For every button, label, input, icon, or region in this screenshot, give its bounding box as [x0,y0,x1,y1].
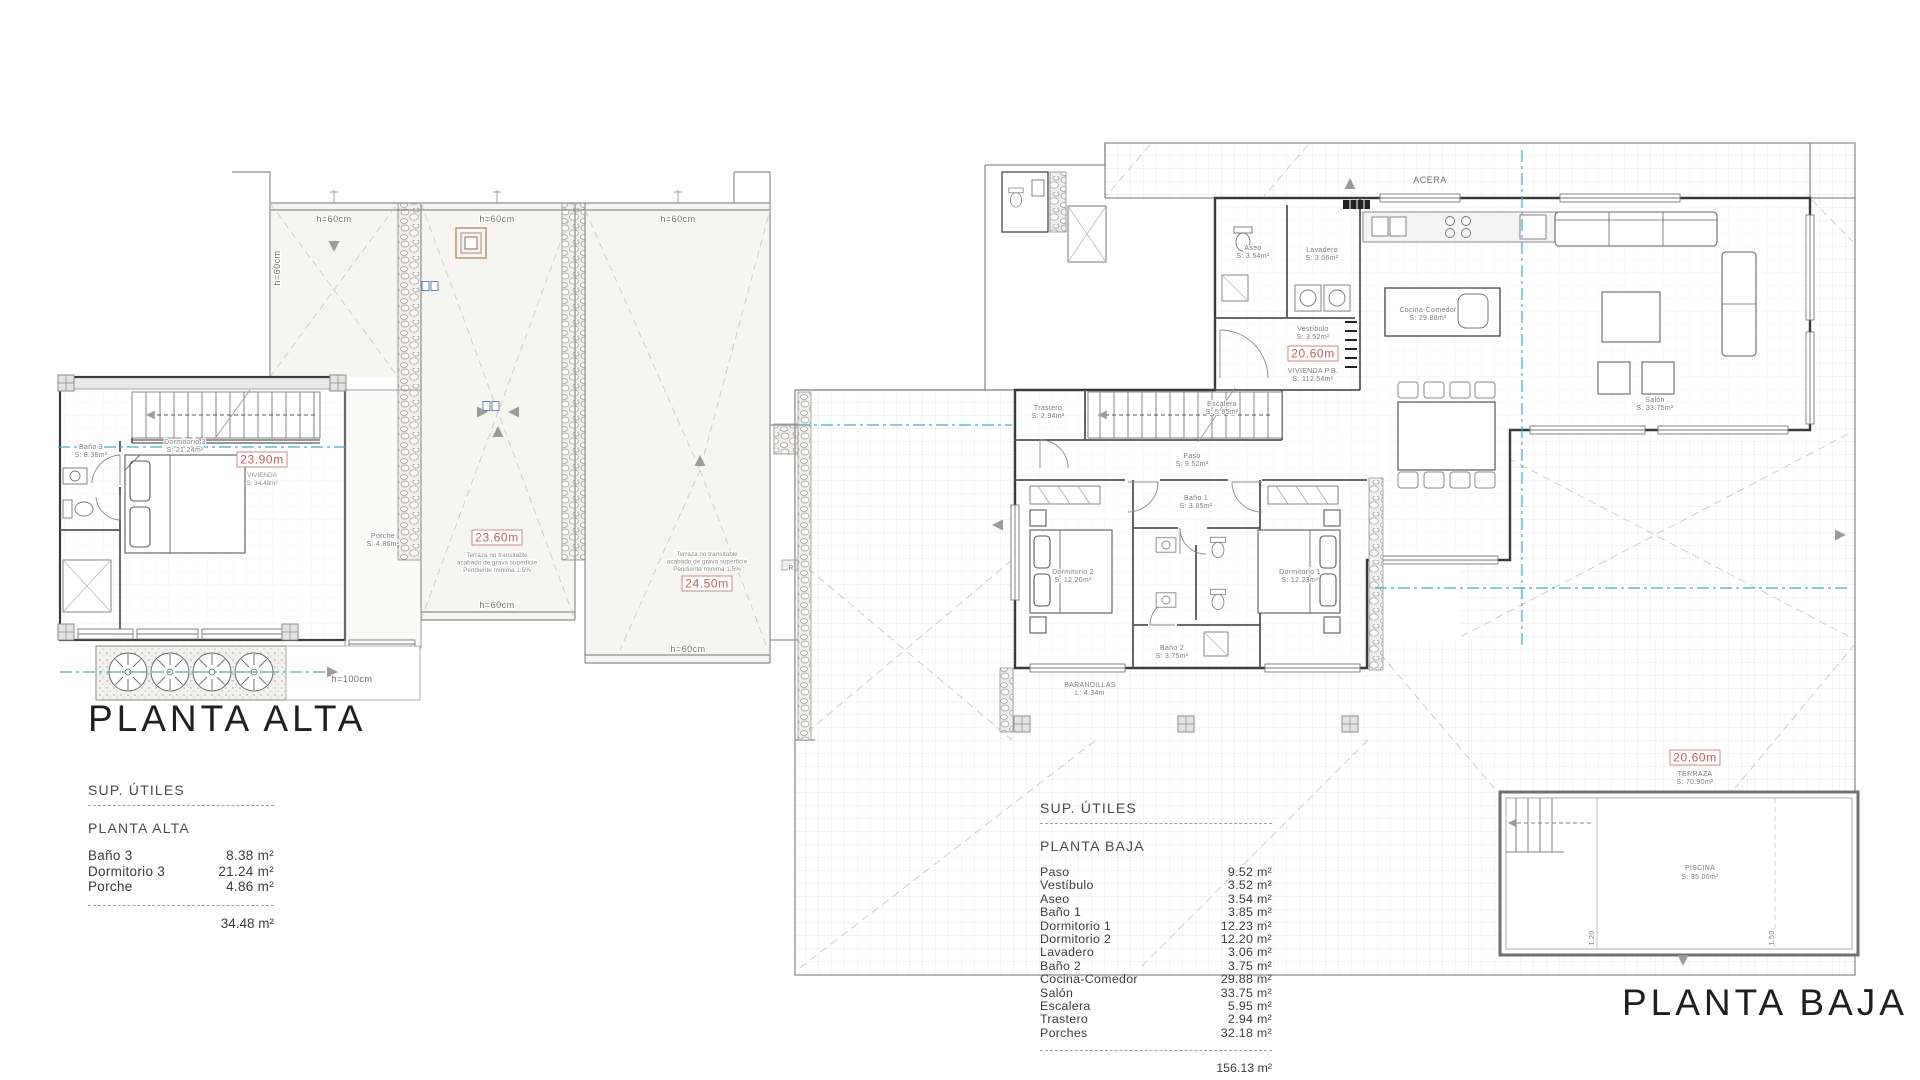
stairs-baja [1088,388,1282,442]
room-area: S: 8.38m² [74,452,107,459]
room-area: S: 3.06m² [1305,255,1338,262]
area-row: Trastero2.94 m² [1040,1013,1272,1026]
room-area: S: 3.54m² [1236,253,1269,260]
room-name: Paso [1040,866,1069,879]
room-area-value: 9.52 m² [1228,866,1272,879]
room-area-value: 8.38 m² [226,848,274,864]
area-row: Lavadero3.06 m² [1040,946,1272,959]
room-label-vestibulo: Vestíbulo [1297,326,1329,333]
level-badge-roof-mid: 23.60m [475,531,519,545]
height-label: h=60cm [479,600,514,610]
room-label-trastero: Trastero [1034,405,1062,412]
terraza-label: TERRAZA [1678,771,1713,778]
wardrobe [1268,486,1338,504]
room-label-aseo: Aseo [1244,245,1261,252]
area-row: Baño 38.38 m² [88,848,274,864]
wardrobe [1030,486,1100,504]
room-area-value: 5.95 m² [1228,1000,1272,1013]
roof-note: Terraza no transitable [466,552,528,559]
table-total: 156.13 m² [1040,1050,1272,1075]
room-label-salon: Salón [1645,397,1664,404]
table-rows: Paso9.52 m²Vestíbulo3.52 m²Aseo3.54 m²Ba… [1040,866,1272,1040]
level-badge-vivienda-alta: 23.90m [240,453,284,467]
room-area: S: 29.88m² [1409,315,1447,322]
roof-note: Terraza no transitable [676,551,738,558]
roof-note: Pendiente mínima 1.5% [463,567,531,574]
area-row: Porche4.86 m² [88,879,274,895]
room-label-dormitorio1: Dormitorio 1 [1279,569,1321,576]
drain-marker: R [788,565,793,572]
area-row: Dormitorio 321.24 m² [88,864,274,880]
room-label-lavadero: Lavadero [1306,247,1338,254]
pool-depth-mark: 1.50 [1769,931,1776,946]
pool [1500,792,1858,955]
stairs-alta [132,390,320,443]
barandilla-note: BARANDILLAS [1064,682,1116,689]
table-header: SUP. ÚTILES [1040,800,1272,824]
table-subheader: PLANTA BAJA [1040,838,1272,854]
room-label-dormitorio2: Dormitorio 2 [1052,569,1094,576]
room-area: S: 12.23m² [1281,577,1319,584]
room-area: S: 4.86m² [366,541,399,548]
room-area: S: 12.20m² [1054,577,1092,584]
area-row: Baño 13.85 m² [1040,906,1272,919]
room-label-escalera: Escalera [1207,401,1237,408]
room-name: Vestíbulo [1040,879,1094,892]
piscina-label: PISCINA [1685,865,1715,872]
room-area: S: 21.24m² [166,447,204,454]
table-total: 34.48 m² [88,905,274,931]
room-area: S: 33.75m² [1636,405,1674,412]
room-name: Salón [1040,987,1073,1000]
room-area-value: 3.52 m² [1228,879,1272,892]
planta-baja-drawing: ACERA Aseo S: 3.54m² Lavadero S: 3.06m² … [795,143,1858,975]
room-name: Cocina-Comedor [1040,973,1138,986]
room-area-value: 3.85 m² [1228,906,1272,919]
room-area: S: 3.75m² [1155,653,1188,660]
room-area: S: 2.94m² [1031,413,1064,420]
area-row: Escalera5.95 m² [1040,1000,1272,1013]
room-name: Escalera [1040,1000,1091,1013]
room-area-value: 3.54 m² [1228,893,1272,906]
room-area: S: 3.85m² [1179,503,1212,510]
room-name: Baño 1 [1040,906,1081,919]
room-area-value: 29.88 m² [1221,973,1272,986]
pool-depth-mark: 1.20 [1589,931,1596,946]
room-area-value: 3.75 m² [1228,960,1272,973]
room-area-value: 32.18 m² [1221,1027,1272,1040]
height-label: h=60cm [272,250,282,285]
area-row: Salón33.75 m² [1040,987,1272,1000]
room-name: Lavadero [1040,946,1094,959]
room-area-value: 3.06 m² [1228,946,1272,959]
planta-alta-title: PLANTA ALTA [88,698,366,740]
level-badge-roof-right: 24.50m [685,577,729,591]
room-label-dormitorio3: Dormitorio 3 [164,439,206,446]
room-area-value: 33.75 m² [1221,987,1272,1000]
room-area: S: 112.54m² [1293,376,1334,383]
room-label: VIVIENDA P.B. [1288,368,1338,375]
roof-note: acabado de grava superficie [667,559,748,566]
room-area: S: 5.95m² [1205,409,1238,416]
area-row: Cocina-Comedor29.88 m² [1040,973,1272,986]
room-area-value: 4.86 m² [226,879,274,895]
room-area-value: 2.94 m² [1228,1013,1272,1026]
room-name: Dormitorio 3 [88,864,165,880]
room-area-value: 12.23 m² [1221,920,1272,933]
room-label: VIVIENDA [247,472,278,479]
area-row: Dormitorio 212.20 m² [1040,933,1272,946]
room-name: Porche [88,879,133,895]
room-name: Dormitorio 2 [1040,933,1111,946]
barandilla-note: L: 4.34m [1075,690,1105,697]
room-area: S: 9.52m² [1175,461,1208,468]
room-name: Aseo [1040,893,1069,906]
table-subheader: PLANTA ALTA [88,820,274,836]
room-name: Trastero [1040,1013,1088,1026]
area-row: Dormitorio 112.23 m² [1040,920,1272,933]
terraza-area: S: 70.90m² [1676,779,1714,786]
room-name: Baño 3 [88,848,133,864]
area-row: Porches32.18 m² [1040,1027,1272,1040]
height-label: h=100cm [332,674,373,684]
area-table-baja: SUP. ÚTILES PLANTA BAJA Paso9.52 m²Vestí… [1040,800,1272,1075]
height-label: h=60cm [316,214,351,224]
table-header: SUP. ÚTILES [88,782,274,806]
height-label: h=60cm [479,214,514,224]
area-row: Paso9.52 m² [1040,866,1272,879]
area-row: Baño 23.75 m² [1040,960,1272,973]
room-area-value: 12.20 m² [1221,933,1272,946]
room-label-cocina: Cocina-Comedor [1399,307,1456,314]
room-label-bano1: Baño 1 [1184,495,1208,502]
outdoor-utility-annex [1002,172,1106,262]
room-area: S: 3.52m² [1296,334,1329,341]
area-row: Vestíbulo3.52 m² [1040,879,1272,892]
room-name: Porches [1040,1027,1088,1040]
room-label-bano2: Baño 2 [1160,645,1184,652]
floorplan-sheet: h=60cm h=60cm h=60cm h=60cm h=60cm h=60c… [0,0,1920,1080]
planta-baja-title: PLANTA BAJA [1622,982,1908,1024]
skylight-icon [456,228,486,258]
roof-note: acabado de grava superficie [457,560,538,567]
table-rows: Baño 38.38 m²Dormitorio 321.24 m²Porche4… [88,848,274,895]
acera-label: ACERA [1413,175,1447,185]
room-label-bano3: Baño 3 [79,444,103,451]
room-label-paso: Paso [1183,453,1200,460]
area-table-alta: SUP. ÚTILES PLANTA ALTA Baño 38.38 m²Dor… [88,782,274,931]
planta-alta-drawing: h=60cm h=60cm h=60cm h=60cm h=60cm h=60c… [58,172,804,700]
room-area-value: 21.24 m² [218,864,274,880]
room-name: Baño 2 [1040,960,1081,973]
area-row: Aseo3.54 m² [1040,893,1272,906]
floor-plans-drawing: h=60cm h=60cm h=60cm h=60cm h=60cm h=60c… [0,0,1920,1080]
room-area: S: 34.48m² [246,480,277,487]
height-label: h=60cm [670,644,705,654]
level-badge-terraza: 20.60m [1673,751,1717,765]
piscina-area: S: 35.00m² [1681,874,1719,881]
room-name: Dormitorio 1 [1040,920,1111,933]
room-label-porche: Porche [371,533,395,540]
height-label: h=60cm [660,214,695,224]
bed-dormitorio3 [125,455,245,553]
roof-note: Pendiente mínima 1.5% [673,566,741,573]
level-badge-vivienda-baja: 20.60m [1291,347,1335,361]
